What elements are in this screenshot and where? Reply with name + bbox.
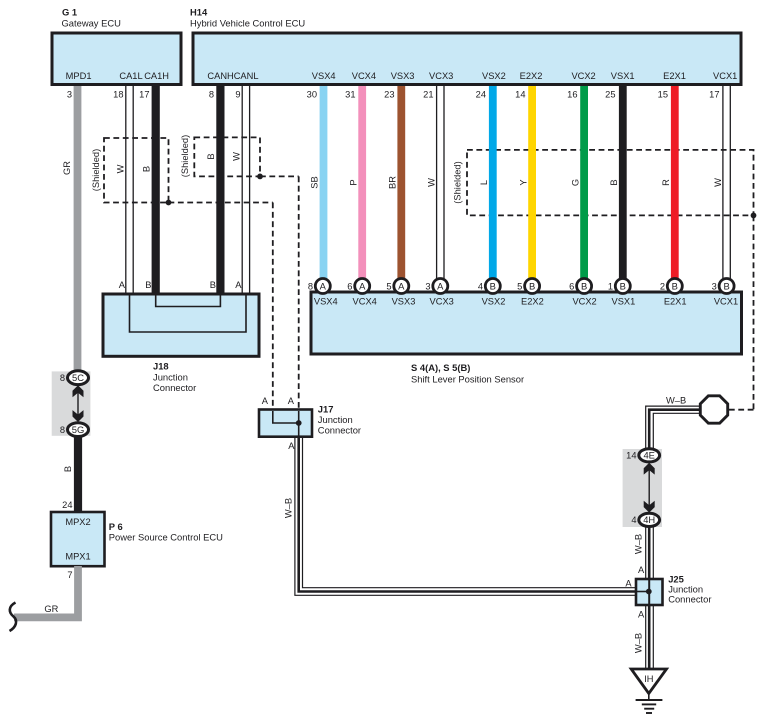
svg-text:W: W: [232, 152, 242, 161]
svg-text:15: 15: [658, 90, 668, 100]
svg-text:9: 9: [235, 90, 240, 100]
svg-text:VSX2: VSX2: [482, 71, 506, 81]
svg-text:1: 1: [608, 282, 613, 292]
svg-text:G 1: G 1: [62, 7, 77, 18]
svg-text:30: 30: [307, 90, 317, 100]
svg-text:(Shielded): (Shielded): [180, 135, 190, 177]
svg-text:GR: GR: [62, 161, 72, 175]
svg-text:4H: 4H: [643, 514, 655, 525]
svg-text:8: 8: [60, 373, 65, 383]
svg-text:6: 6: [347, 282, 352, 292]
svg-text:25: 25: [605, 90, 615, 100]
svg-text:A: A: [398, 280, 405, 291]
svg-text:B: B: [620, 280, 626, 291]
svg-text:4: 4: [631, 515, 636, 525]
svg-text:W–B: W–B: [633, 534, 643, 554]
svg-text:P 6: P 6: [109, 521, 123, 532]
svg-text:VSX4: VSX4: [314, 297, 338, 307]
svg-text:Hybrid Vehicle Control ECU: Hybrid Vehicle Control ECU: [190, 18, 305, 29]
svg-text:14: 14: [515, 90, 525, 100]
svg-text:(Shielded): (Shielded): [91, 149, 101, 191]
svg-text:2: 2: [660, 282, 665, 292]
svg-text:17: 17: [139, 90, 149, 100]
svg-text:Connector: Connector: [318, 425, 361, 436]
svg-text:A: A: [638, 610, 645, 620]
svg-text:24: 24: [476, 90, 486, 100]
svg-text:VCX1: VCX1: [714, 297, 738, 307]
svg-text:3: 3: [425, 282, 430, 292]
svg-text:H14: H14: [190, 7, 208, 18]
svg-text:5G: 5G: [72, 424, 85, 435]
svg-text:MPX1: MPX1: [65, 552, 90, 562]
svg-text:A: A: [359, 280, 366, 291]
svg-text:23: 23: [384, 90, 394, 100]
svg-text:G: G: [570, 179, 580, 186]
svg-text:A: A: [638, 565, 645, 575]
svg-text:B: B: [142, 166, 152, 172]
svg-text:B: B: [529, 280, 535, 291]
svg-text:Gateway ECU: Gateway ECU: [62, 18, 122, 29]
svg-text:18: 18: [113, 90, 123, 100]
svg-text:VSX3: VSX3: [392, 297, 416, 307]
svg-text:B: B: [723, 280, 729, 291]
svg-text:W: W: [116, 164, 126, 173]
svg-text:A: A: [437, 280, 444, 291]
svg-text:MPX2: MPX2: [65, 517, 90, 527]
svg-text:VSX1: VSX1: [611, 71, 635, 81]
svg-text:VCX4: VCX4: [352, 71, 376, 81]
svg-text:L: L: [479, 180, 489, 185]
svg-text:5: 5: [517, 282, 522, 292]
svg-text:6: 6: [569, 282, 574, 292]
svg-text:Connector: Connector: [153, 382, 196, 393]
svg-text:3: 3: [712, 282, 717, 292]
svg-text:S 4(A), S 5(B): S 4(A), S 5(B): [411, 362, 470, 373]
svg-text:A: A: [625, 578, 632, 588]
svg-text:B: B: [581, 280, 587, 291]
svg-text:B: B: [490, 280, 496, 291]
svg-text:SB: SB: [310, 176, 320, 188]
svg-text:J17: J17: [318, 404, 334, 415]
svg-text:Shift Lever Position Sensor: Shift Lever Position Sensor: [411, 374, 524, 385]
svg-text:E2X2: E2X2: [520, 71, 543, 81]
svg-text:R: R: [661, 179, 671, 186]
svg-text:W: W: [427, 178, 437, 187]
svg-text:A: A: [235, 280, 242, 290]
svg-text:CANL: CANL: [234, 71, 259, 81]
svg-text:VCX3: VCX3: [430, 297, 454, 307]
svg-text:VCX3: VCX3: [429, 71, 453, 81]
svg-text:VSX3: VSX3: [391, 71, 415, 81]
svg-text:VCX2: VCX2: [572, 297, 596, 307]
svg-text:5C: 5C: [72, 372, 84, 383]
svg-text:W: W: [713, 178, 723, 187]
svg-text:4E: 4E: [643, 450, 654, 461]
svg-text:B: B: [145, 280, 151, 290]
svg-text:IH: IH: [644, 674, 653, 684]
svg-text:3: 3: [67, 90, 72, 100]
svg-text:(Shielded): (Shielded): [453, 161, 463, 203]
svg-text:17: 17: [709, 90, 719, 100]
svg-text:J18: J18: [153, 361, 169, 372]
svg-text:B: B: [672, 280, 678, 291]
svg-text:BR: BR: [388, 176, 398, 189]
svg-text:B: B: [609, 179, 619, 185]
svg-text:VSX1: VSX1: [612, 297, 636, 307]
svg-text:4: 4: [478, 282, 483, 292]
svg-text:Y: Y: [518, 179, 528, 185]
svg-text:7: 7: [67, 570, 72, 580]
svg-text:16: 16: [567, 90, 577, 100]
svg-text:A: A: [288, 396, 295, 406]
svg-text:Connector: Connector: [668, 594, 711, 605]
svg-text:E2X1: E2X1: [663, 71, 686, 81]
svg-text:W–B: W–B: [633, 633, 643, 653]
svg-text:21: 21: [423, 90, 433, 100]
svg-text:A: A: [288, 441, 295, 451]
svg-text:VCX4: VCX4: [353, 297, 377, 307]
svg-text:VSX4: VSX4: [312, 71, 336, 81]
svg-text:31: 31: [345, 90, 355, 100]
svg-text:W–B: W–B: [284, 498, 294, 518]
svg-text:CA1H: CA1H: [144, 71, 169, 81]
svg-text:8: 8: [308, 282, 313, 292]
svg-text:VSX2: VSX2: [482, 297, 506, 307]
svg-text:5: 5: [386, 282, 391, 292]
svg-text:VCX1: VCX1: [713, 71, 737, 81]
svg-text:CANH: CANH: [207, 71, 233, 81]
svg-text:W–B: W–B: [666, 396, 686, 406]
svg-text:B: B: [206, 153, 216, 159]
svg-text:E2X1: E2X1: [664, 297, 687, 307]
svg-text:Junction: Junction: [153, 371, 188, 382]
svg-text:B: B: [210, 280, 216, 290]
svg-text:8: 8: [60, 425, 65, 435]
svg-text:P: P: [349, 179, 359, 185]
svg-text:A: A: [262, 396, 269, 406]
svg-text:GR: GR: [44, 604, 58, 614]
svg-text:CA1L: CA1L: [119, 71, 142, 81]
svg-text:MPD1: MPD1: [66, 71, 92, 81]
svg-text:Power Source Control ECU: Power Source Control ECU: [109, 532, 223, 543]
svg-text:A: A: [119, 280, 126, 290]
svg-text:Junction: Junction: [318, 414, 353, 425]
svg-text:14: 14: [626, 451, 636, 461]
svg-text:E2X2: E2X2: [521, 297, 544, 307]
svg-text:VCX2: VCX2: [571, 71, 595, 81]
svg-text:8: 8: [209, 90, 214, 100]
svg-text:B: B: [63, 466, 73, 472]
svg-text:24: 24: [62, 500, 72, 510]
svg-text:A: A: [320, 280, 327, 291]
